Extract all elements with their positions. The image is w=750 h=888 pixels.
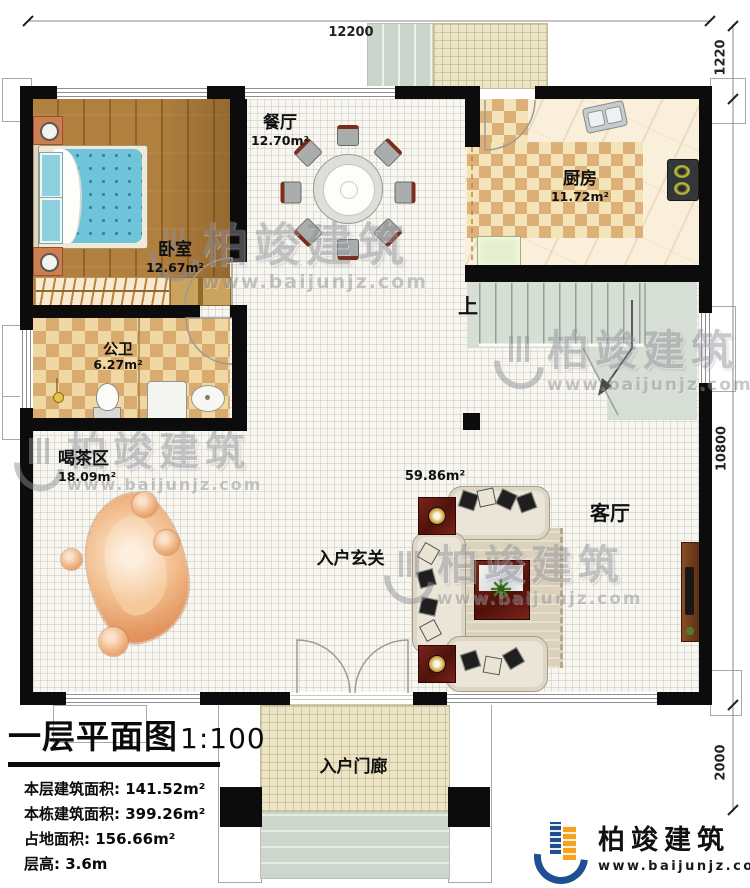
room-area: 6.27m²	[78, 358, 158, 372]
room-name: 喝茶区	[58, 450, 150, 470]
dimension-right-middle: 10800	[715, 426, 730, 472]
room-name: 入户玄关	[303, 550, 398, 570]
room-label-bathroom: 公卫 6.27m²	[78, 341, 158, 373]
room-name: 客厅	[575, 502, 645, 525]
logo-building-blue	[550, 822, 561, 854]
room-name: 入户门廊	[306, 758, 401, 778]
logo-building-orange	[563, 826, 576, 860]
room-label-foyer: 入户玄关	[303, 550, 398, 570]
stairs-direction: 上	[454, 295, 482, 318]
room-area: 59.86m²	[400, 470, 470, 485]
room-label-kitchen: 厨房 11.72m²	[535, 170, 625, 204]
room-label-living: 客厅	[575, 502, 645, 525]
room-area: 12.70m²	[235, 134, 325, 148]
title-block: 一层平面图1:100 本层建筑面积: 141.52m² 本栋建筑面积: 399.…	[8, 710, 238, 877]
floor-plan-canvas: 12200 1220 10800 2000 柏竣建筑 www.baijunjz.…	[0, 0, 750, 888]
room-name: 卧室	[130, 241, 220, 261]
dimension-top: 12200	[325, 25, 377, 40]
stairs-up-label: 上	[454, 295, 482, 318]
plan-title: 一层平面图1:100	[8, 710, 238, 758]
info-floor-area: 本层建筑面积: 141.52m²	[24, 777, 238, 802]
dimension-right-top: 1220	[714, 38, 729, 78]
room-name: 公卫	[78, 341, 158, 358]
room-name: 厨房	[535, 170, 625, 190]
room-area: 12.67m²	[130, 261, 220, 275]
room-label-dining: 餐厅 12.70m²	[235, 114, 325, 148]
info-footprint-area: 占地面积: 156.66m²	[24, 827, 238, 852]
title-underline	[8, 762, 220, 767]
room-area-living: 59.86m²	[400, 470, 470, 485]
info-floor-height: 层高: 3.6m	[24, 852, 238, 877]
company-name: 柏竣建筑	[598, 818, 750, 857]
dimension-right-bottom: 2000	[714, 743, 729, 783]
info-total-area: 本栋建筑面积: 399.26m²	[24, 802, 238, 827]
room-area: 11.72m²	[535, 190, 625, 204]
room-area: 18.09m²	[58, 470, 150, 484]
company-website: www.baijunjz.com	[598, 859, 750, 874]
room-label-bedroom: 卧室 12.67m²	[130, 241, 220, 275]
company-logo-icon	[534, 818, 588, 874]
room-label-tea: 喝茶区 18.09m²	[58, 450, 150, 484]
company-logo: 柏竣建筑 www.baijunjz.com	[534, 818, 750, 874]
room-label-porch: 入户门廊	[306, 758, 401, 778]
room-name: 餐厅	[235, 114, 325, 134]
plan-title-text: 一层平面图	[8, 717, 178, 756]
plan-scale: 1:100	[180, 722, 266, 755]
